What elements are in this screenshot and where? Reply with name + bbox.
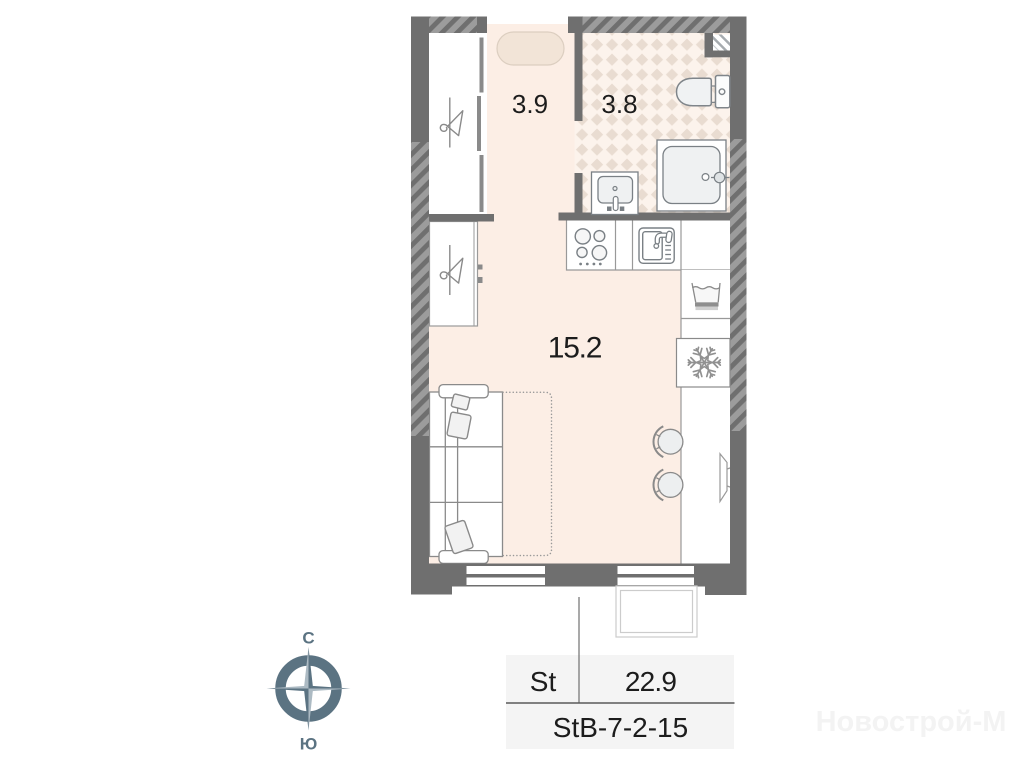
svg-text:Ю: Ю	[300, 735, 318, 754]
svg-text:StB-7-2-15: StB-7-2-15	[553, 712, 688, 743]
svg-text:Новострой-М: Новострой-М	[816, 706, 1007, 738]
svg-text:St: St	[530, 666, 557, 697]
svg-text:С: С	[302, 629, 314, 648]
svg-text:22.9: 22.9	[625, 666, 677, 697]
svg-text:3.8: 3.8	[601, 89, 637, 119]
svg-text:3.9: 3.9	[512, 89, 548, 119]
svg-text:15.2: 15.2	[548, 332, 602, 365]
